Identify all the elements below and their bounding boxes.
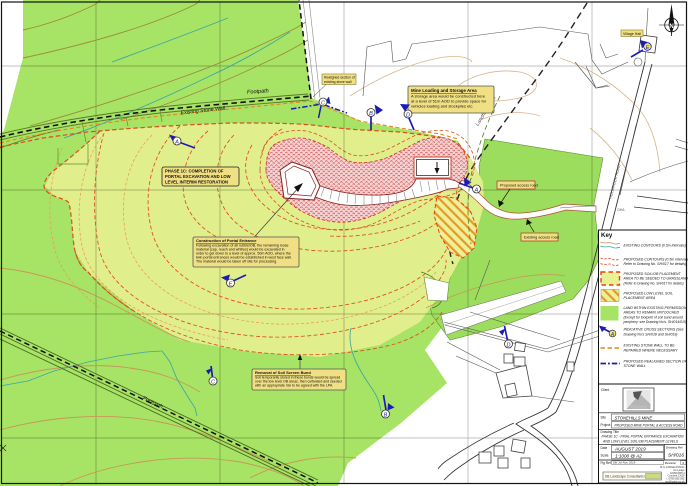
- svg-text:A: A: [174, 139, 179, 145]
- svg-text:1:1000 @ A2: 1:1000 @ A2: [615, 454, 642, 459]
- svg-text:STONEHILLS MINE: STONEHILLS MINE: [615, 415, 653, 420]
- svg-text:Construction of Portal Entranc: Construction of Portal Entrance: [196, 238, 257, 243]
- svg-text:Village Hall: Village Hall: [623, 32, 641, 36]
- svg-text:AUGUST 2019: AUGUST 2019: [614, 447, 646, 452]
- svg-text:B: B: [384, 412, 388, 418]
- svg-text:PORTAL EXCAVATION AND LOW: PORTAL EXCAVATION AND LOW: [165, 174, 231, 179]
- svg-text:PLACEMENT AREA: PLACEMENT AREA: [624, 296, 656, 300]
- svg-text:LEVEL INTERIM RESTORATION: LEVEL INTERIM RESTORATION: [165, 180, 228, 185]
- svg-text:PROPOSED REALIGNED SECTION OF: PROPOSED REALIGNED SECTION OF: [624, 359, 688, 363]
- svg-text:LAND WITHIN EXISTING PERMISSIO: LAND WITHIN EXISTING PERMISSION: [624, 306, 687, 310]
- svg-text:Mine Loading and Storage Area: Mine Loading and Storage Area: [411, 88, 477, 93]
- svg-text:E: E: [646, 45, 650, 51]
- svg-text:AREA TO BE SEEDED TO GRASSLAN: AREA TO BE SEEDED TO GRASSLAND: [623, 277, 688, 281]
- svg-text:PHASE 1C: COMPLETION OF: PHASE 1C: COMPLETION OF: [165, 169, 224, 174]
- svg-text:Revision: Revision: [665, 461, 676, 465]
- svg-text:D: D: [406, 112, 410, 118]
- svg-text:REPAIRED WHERE NECESSARY: REPAIRED WHERE NECESSARY: [624, 349, 679, 353]
- svg-text:Project: Project: [601, 423, 611, 427]
- svg-text:The material would be taken of: The material would be taken off site for…: [196, 260, 277, 264]
- svg-text:N: N: [669, 24, 673, 30]
- svg-text:SM Jul-Nov 2019: SM Jul-Nov 2019: [613, 461, 636, 465]
- svg-text:SH/016: SH/016: [668, 453, 684, 459]
- svg-text:Proposed access road: Proposed access road: [500, 184, 538, 188]
- svg-text:(Except for footprint of soil: (Except for footprint of soil bund aroun…: [624, 316, 683, 320]
- svg-text:PHASE 1C - FINAL PORTAL ENTRAN: PHASE 1C - FINAL PORTAL ENTRANCE EXCAVAT…: [602, 434, 684, 438]
- svg-text:PROPOSED MINE PORTAL & ACCESS: PROPOSED MINE PORTAL & ACCESS ROAD: [615, 424, 683, 428]
- svg-text:Refer to Drawing No. SH/017 fo: Refer to Drawing No. SH/017 for details): [624, 262, 687, 266]
- svg-text:PROPOSED SOIL/OB PLACEMENT: PROPOSED SOIL/OB PLACEMENT: [624, 272, 682, 276]
- svg-text:Drawing Title: Drawing Title: [601, 430, 620, 434]
- svg-text:PROPOSED LOW LEVEL SOIL: PROPOSED LOW LEVEL SOIL: [624, 291, 674, 295]
- svg-text:EXISTING STONE WALL TO BE: EXISTING STONE WALL TO BE: [624, 344, 676, 348]
- svg-text:A: A: [474, 187, 479, 193]
- svg-text:E: E: [229, 281, 233, 287]
- svg-text:existing stone wall: existing stone wall: [324, 80, 352, 84]
- svg-text:vehicles loading and stockpile: vehicles loading and stockpiles etc.: [411, 104, 473, 109]
- svg-text:A: A: [610, 332, 615, 338]
- svg-text:OH/L: OH/L: [617, 208, 625, 212]
- svg-text:EXISTING CONTOURS (0.5m interv: EXISTING CONTOURS (0.5m intervals): [624, 243, 686, 247]
- svg-text:D: D: [506, 342, 510, 348]
- svg-text:AREAS TO REMAIN UNTOUCHED: AREAS TO REMAIN UNTOUCHED: [623, 311, 680, 315]
- svg-text:(Refer to Drawing No. SH/017 f: (Refer to Drawing No. SH/017 for details…: [624, 282, 684, 286]
- svg-text:Drawing No's SH/018 and SH/019: Drawing No's SH/018 and SH/019): [624, 333, 678, 337]
- svg-text:AND LOW LEVEL SOIL/OB PLACEMEN: AND LOW LEVEL SOIL/OB PLACEMENT LEVELS: [602, 439, 678, 443]
- svg-text:Date: Date: [601, 446, 608, 450]
- svg-text:Scale: Scale: [601, 453, 609, 457]
- svg-text:Drawing Ref: Drawing Ref: [666, 445, 683, 449]
- svg-text:Site: Site: [601, 416, 607, 420]
- svg-text:DB Landscape Consultants Ltd: DB Landscape Consultants Ltd: [605, 475, 649, 479]
- svg-text:Client: Client: [601, 388, 609, 392]
- svg-text:periphery: see Drawing No's. S: periphery: see Drawing No's. SH/014/015): [623, 320, 687, 324]
- svg-text:INDICATIVE CROSS SECTIONS (See: INDICATIVE CROSS SECTIONS (See: [624, 328, 684, 332]
- svg-text:with an appropriate mix to be: with an appropriate mix to be agreed wit…: [255, 384, 333, 388]
- svg-text:Existing access road: Existing access road: [524, 236, 559, 240]
- svg-text:B: B: [369, 111, 373, 117]
- svg-text:PROPOSED CONTOURS (0.5m interv: PROPOSED CONTOURS (0.5m intervals: [624, 257, 688, 261]
- svg-text:Fig Ref: Fig Ref: [601, 461, 611, 465]
- svg-text:STONE WALL: STONE WALL: [624, 364, 646, 368]
- svg-text:Key: Key: [601, 232, 613, 239]
- svg-text:Removal of Soil Screen Bund: Removal of Soil Screen Bund: [255, 370, 311, 375]
